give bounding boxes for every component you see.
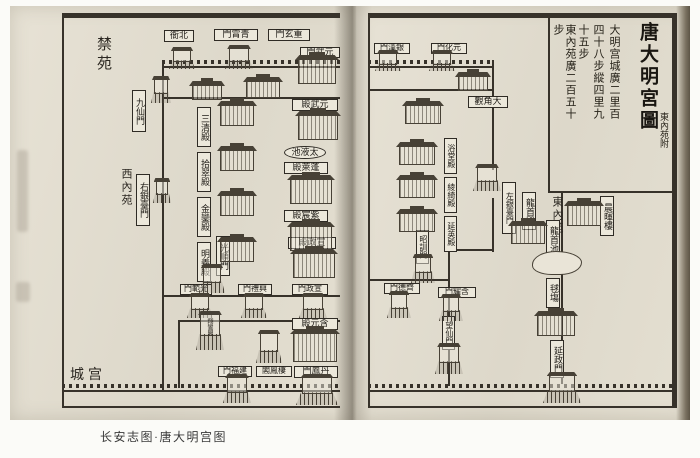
region-label-xineiyuan: 西內苑 [118,168,134,207]
hall-icon [220,106,254,126]
gate-tower-icon-yanzhengmen [543,375,581,403]
hall-icon-yanyingdian [399,214,435,232]
hall-label-yanyingdian: 延英殿 [444,216,457,252]
gate-label-youyintaimen: 右銀臺門 [136,174,150,226]
left-frame-bottom [62,406,340,408]
longshou-pond [532,251,582,275]
hall-icon-xuanzhengdian [293,254,335,278]
hall-icon [220,151,254,171]
right-frame-bottom [368,406,676,408]
gate-tower-icon-xinglimen [241,296,267,318]
hall-label-shicuidian: 拾翠殿 [197,152,211,192]
size-note-col-4: 東內苑廣二百五十 [564,24,575,120]
gate-tower-icon-xuanzhengmen [299,296,327,318]
hall-icon-longshoudian [511,226,545,244]
size-note-col-1: 大明宫城廣二里百 [608,24,619,120]
gate-tower-icon-youyintaimen [153,181,171,203]
corner-tower-icon-xiangluange: 翔鸞閣 [196,314,224,350]
hall-icon-chenhuilou [567,206,601,226]
hall-icon-yutangdian [399,147,435,165]
gate-tower-icon-danfengmen [296,377,338,405]
corner-tower-icon-qifengge [256,333,282,363]
hall-icon [298,60,336,84]
tower-label-xiangluange: 翔鸞閣 [206,318,212,336]
spine-smudge [17,150,28,232]
field-label-qiuchang: 毬塲 [546,278,560,308]
hall-icon [246,82,280,98]
size-note-col-3: 十五步 [577,24,588,60]
gate-tower-icon [225,48,253,69]
mid-wall-east [368,279,448,281]
map-subtitle: 東內苑附 [659,112,668,148]
hall-label-sanqingdian: 三清殿 [197,107,211,147]
left-frame-left [62,13,64,408]
page-gutter-shadow [334,6,372,420]
tower-label-qifengge: 閣鳳棲 [256,366,292,377]
scanned-book-spread: 禁苑 西內苑 城宫 衙北 門霄青 門玄重 門武元 殿武元 池液太 殿萊蓬 殿宸紫… [0,0,700,458]
hall-icon-yuanwudian [298,116,338,140]
tower-label-chenhuilou: 晨暉樓 [600,196,614,236]
right-frame-right [672,13,677,408]
title-divider-h [548,191,674,193]
gate-label-beiya: 衙北 [164,30,194,42]
east-wall-upper [492,60,494,170]
right-frame-left [368,13,370,408]
hall-label-dajiaoguan: 觀角大 [468,96,508,108]
gate-label-chongxuanmen: 門玄重 [268,29,310,41]
size-note-col-5: 步 [552,24,563,36]
figure-caption: 长安志图·唐大明宫图 [100,428,227,445]
right-frame-top [368,13,676,18]
gate-tower-icon-jiuxianmen [151,79,171,103]
gate-tower-icon [169,50,195,69]
hall-icon [220,242,254,262]
gate-tower-icon-zuoyintaimen [473,167,501,191]
gate-tower-icon-zhaoxunmen [411,257,435,283]
region-label-gongcheng: 城宫 [70,364,106,384]
book-edge-shadow [676,6,690,420]
gate-tower-icon-hanyaomen [439,297,463,321]
hall-label-lingqidian: 綾綺殿 [444,177,457,213]
gate-tower-icon-qidemen [387,294,411,318]
hall-icon-dajiaoguan [405,106,441,124]
hall-label-jinluandian: 金鑾殿 [197,197,211,237]
west-wall [162,60,164,390]
court-wall-west [178,320,180,388]
gate-label-jiuxianmen: 九仙門 [132,90,146,132]
hall-icon [192,86,222,100]
hall-icon [220,196,254,216]
title-divider-v [548,13,550,193]
hall-icon [458,77,488,91]
hall-icon-penglaidian [290,180,332,204]
gate-tower-icon-yinhanmen [375,53,401,71]
hall-icon-hanyuandian [293,334,337,362]
region-label-jinyuan: 禁苑 [93,36,114,74]
south-wall-east [368,384,676,392]
gate-label-qingxiaomen: 門霄青 [214,29,258,41]
pond-label-taiyechi: 池液太 [284,146,326,159]
spine-smudge [16,282,30,302]
east-wall-lower [492,198,494,252]
gate-tower-icon-guangshunmen [199,267,225,293]
left-frame-top [62,13,340,18]
map-title: 唐大明宮圖 [634,22,661,132]
hall-icon-qiuchang [537,316,575,336]
gate-tower-icon-yuanhuamen [429,53,455,71]
gate-tower-icon-wangxianmen [435,346,463,374]
gate-tower-icon-jianfumen [223,377,251,403]
hall-label-yutangdian: 浴堂殿 [444,138,457,174]
size-note-col-2: 四十八步縱四里九 [592,24,603,120]
hall-icon-lingqidian [399,180,435,198]
